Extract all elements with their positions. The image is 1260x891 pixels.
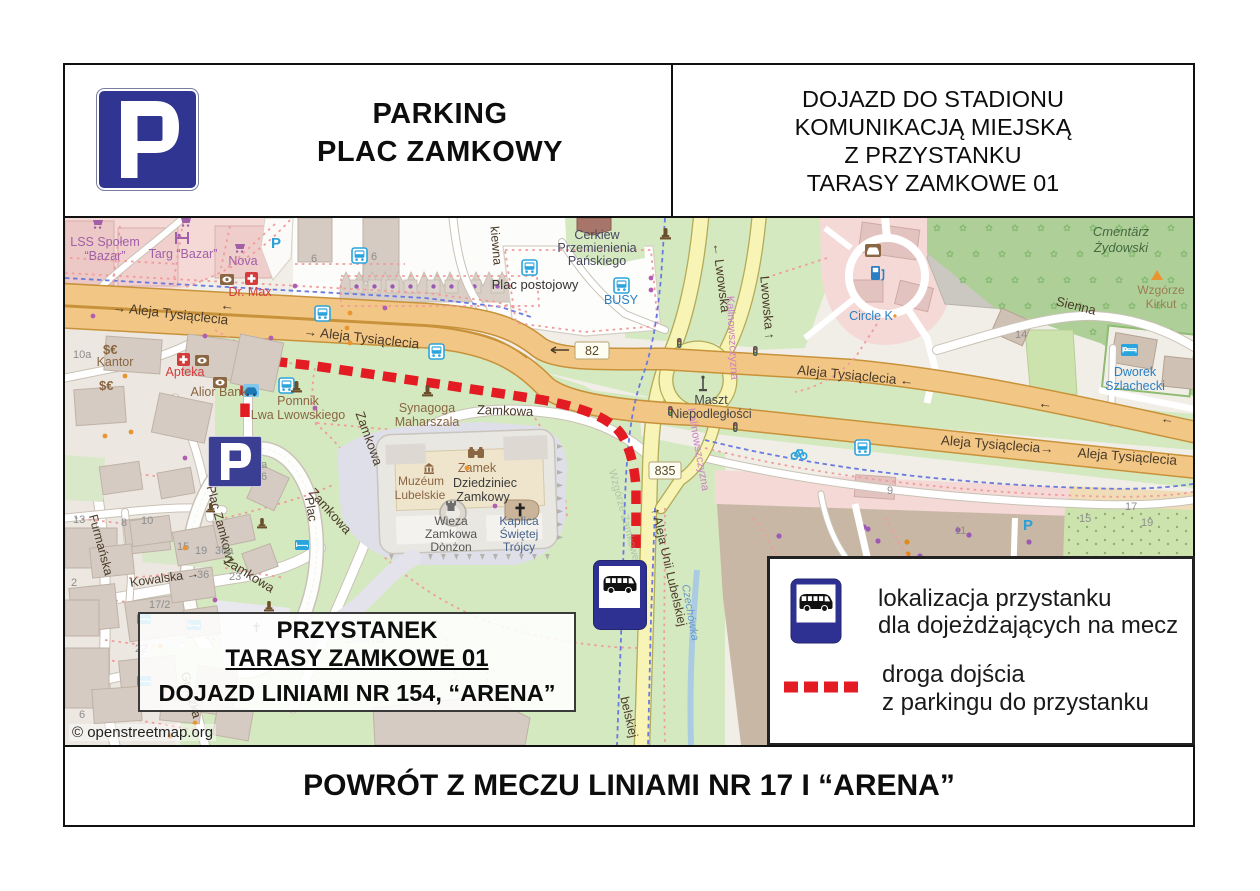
svg-text:“Bazar”: “Bazar”: [85, 249, 126, 263]
svg-text:Lwa Lwowskiego: Lwa Lwowskiego: [251, 408, 346, 422]
svg-text:8: 8: [121, 517, 127, 529]
svg-text:Plac postojowy: Plac postojowy: [492, 277, 579, 292]
svg-text:Pomnik: Pomnik: [277, 394, 319, 408]
svg-text:Circle K: Circle K: [849, 309, 893, 323]
svg-text:P: P: [1023, 517, 1033, 534]
svg-text:36: 36: [197, 569, 209, 581]
svg-text:Cerkiew: Cerkiew: [574, 228, 620, 242]
svg-text:2: 2: [71, 577, 77, 589]
svg-text:Dworek: Dworek: [1114, 365, 1157, 379]
svg-text:Nova: Nova: [228, 254, 257, 268]
svg-text:P: P: [271, 235, 281, 252]
svg-text:Zamkowa: Zamkowa: [425, 527, 477, 541]
svg-text:Szlachecki: Szlachecki: [1105, 379, 1165, 393]
svg-text:10: 10: [141, 515, 153, 527]
svg-text:Kantor: Kantor: [97, 355, 134, 369]
svg-text:Trójcy: Trójcy: [503, 540, 535, 554]
svg-text:Dònżon: Dònżon: [430, 540, 471, 554]
svg-text:Dziedziniec: Dziedziniec: [453, 476, 517, 490]
svg-text:10a: 10a: [73, 349, 92, 361]
svg-text:9: 9: [887, 485, 893, 497]
svg-text:←: ←: [1160, 410, 1174, 426]
svg-text:Przemienienia: Przemienienia: [557, 241, 636, 255]
svg-text:Synagoga: Synagoga: [399, 401, 455, 415]
svg-text:•: •: [893, 309, 897, 323]
svg-text:23: 23: [229, 571, 241, 583]
svg-text:Wieza: Wieza: [434, 514, 468, 528]
svg-text:82: 82: [585, 344, 599, 358]
svg-text:←: ←: [1038, 394, 1054, 411]
svg-text:Lubelskie: Lubelskie: [395, 488, 446, 502]
svg-text:11: 11: [955, 525, 966, 537]
svg-text:6: 6: [311, 253, 317, 265]
svg-text:17/2: 17/2: [149, 599, 170, 611]
svg-text:Wzgórze: Wzgórze: [1137, 283, 1185, 297]
svg-text:Zamkowy: Zamkowy: [456, 490, 510, 504]
svg-text:Dr. Max: Dr. Max: [228, 285, 272, 299]
svg-text:835: 835: [655, 464, 676, 478]
svg-text:19: 19: [1141, 517, 1153, 529]
svg-text:Kirkut: Kirkut: [1146, 297, 1177, 311]
svg-text:6: 6: [79, 709, 85, 721]
svg-text:17: 17: [1125, 501, 1137, 513]
svg-text:13: 13: [73, 514, 85, 526]
svg-text:Muzéum: Muzéum: [398, 474, 444, 488]
svg-text:$€: $€: [99, 378, 113, 393]
svg-text:LSS Społem: LSS Społem: [70, 235, 139, 249]
svg-text:Cmentärz: Cmentärz: [1093, 224, 1150, 239]
svg-text:14: 14: [1015, 329, 1027, 341]
svg-text:36a: 36a: [215, 545, 234, 557]
svg-text:Niepodległości: Niepodległości: [670, 407, 751, 421]
svg-text:Świętej: Świętej: [500, 526, 539, 541]
svg-text:Zamkowa: Zamkowa: [477, 402, 535, 419]
svg-text:BUSY: BUSY: [604, 293, 639, 307]
svg-text:Kaplica: Kaplica: [499, 514, 539, 528]
svg-text:Alior Bank: Alior Bank: [191, 385, 249, 399]
svg-text:Pańskiego: Pańskiego: [568, 254, 626, 268]
svg-text:Żydowski: Żydowski: [1093, 240, 1149, 255]
svg-text:Targ “Bazar”: Targ “Bazar”: [149, 247, 218, 261]
svg-text:Zamek: Zamek: [458, 461, 497, 475]
svg-text:6: 6: [371, 251, 377, 263]
svg-text:Maszt: Maszt: [694, 393, 728, 407]
svg-text:Maharszala: Maharszala: [395, 415, 460, 429]
svg-text:Apteka: Apteka: [166, 365, 205, 379]
svg-text:15: 15: [1079, 513, 1091, 525]
svg-text:19: 19: [195, 545, 207, 557]
